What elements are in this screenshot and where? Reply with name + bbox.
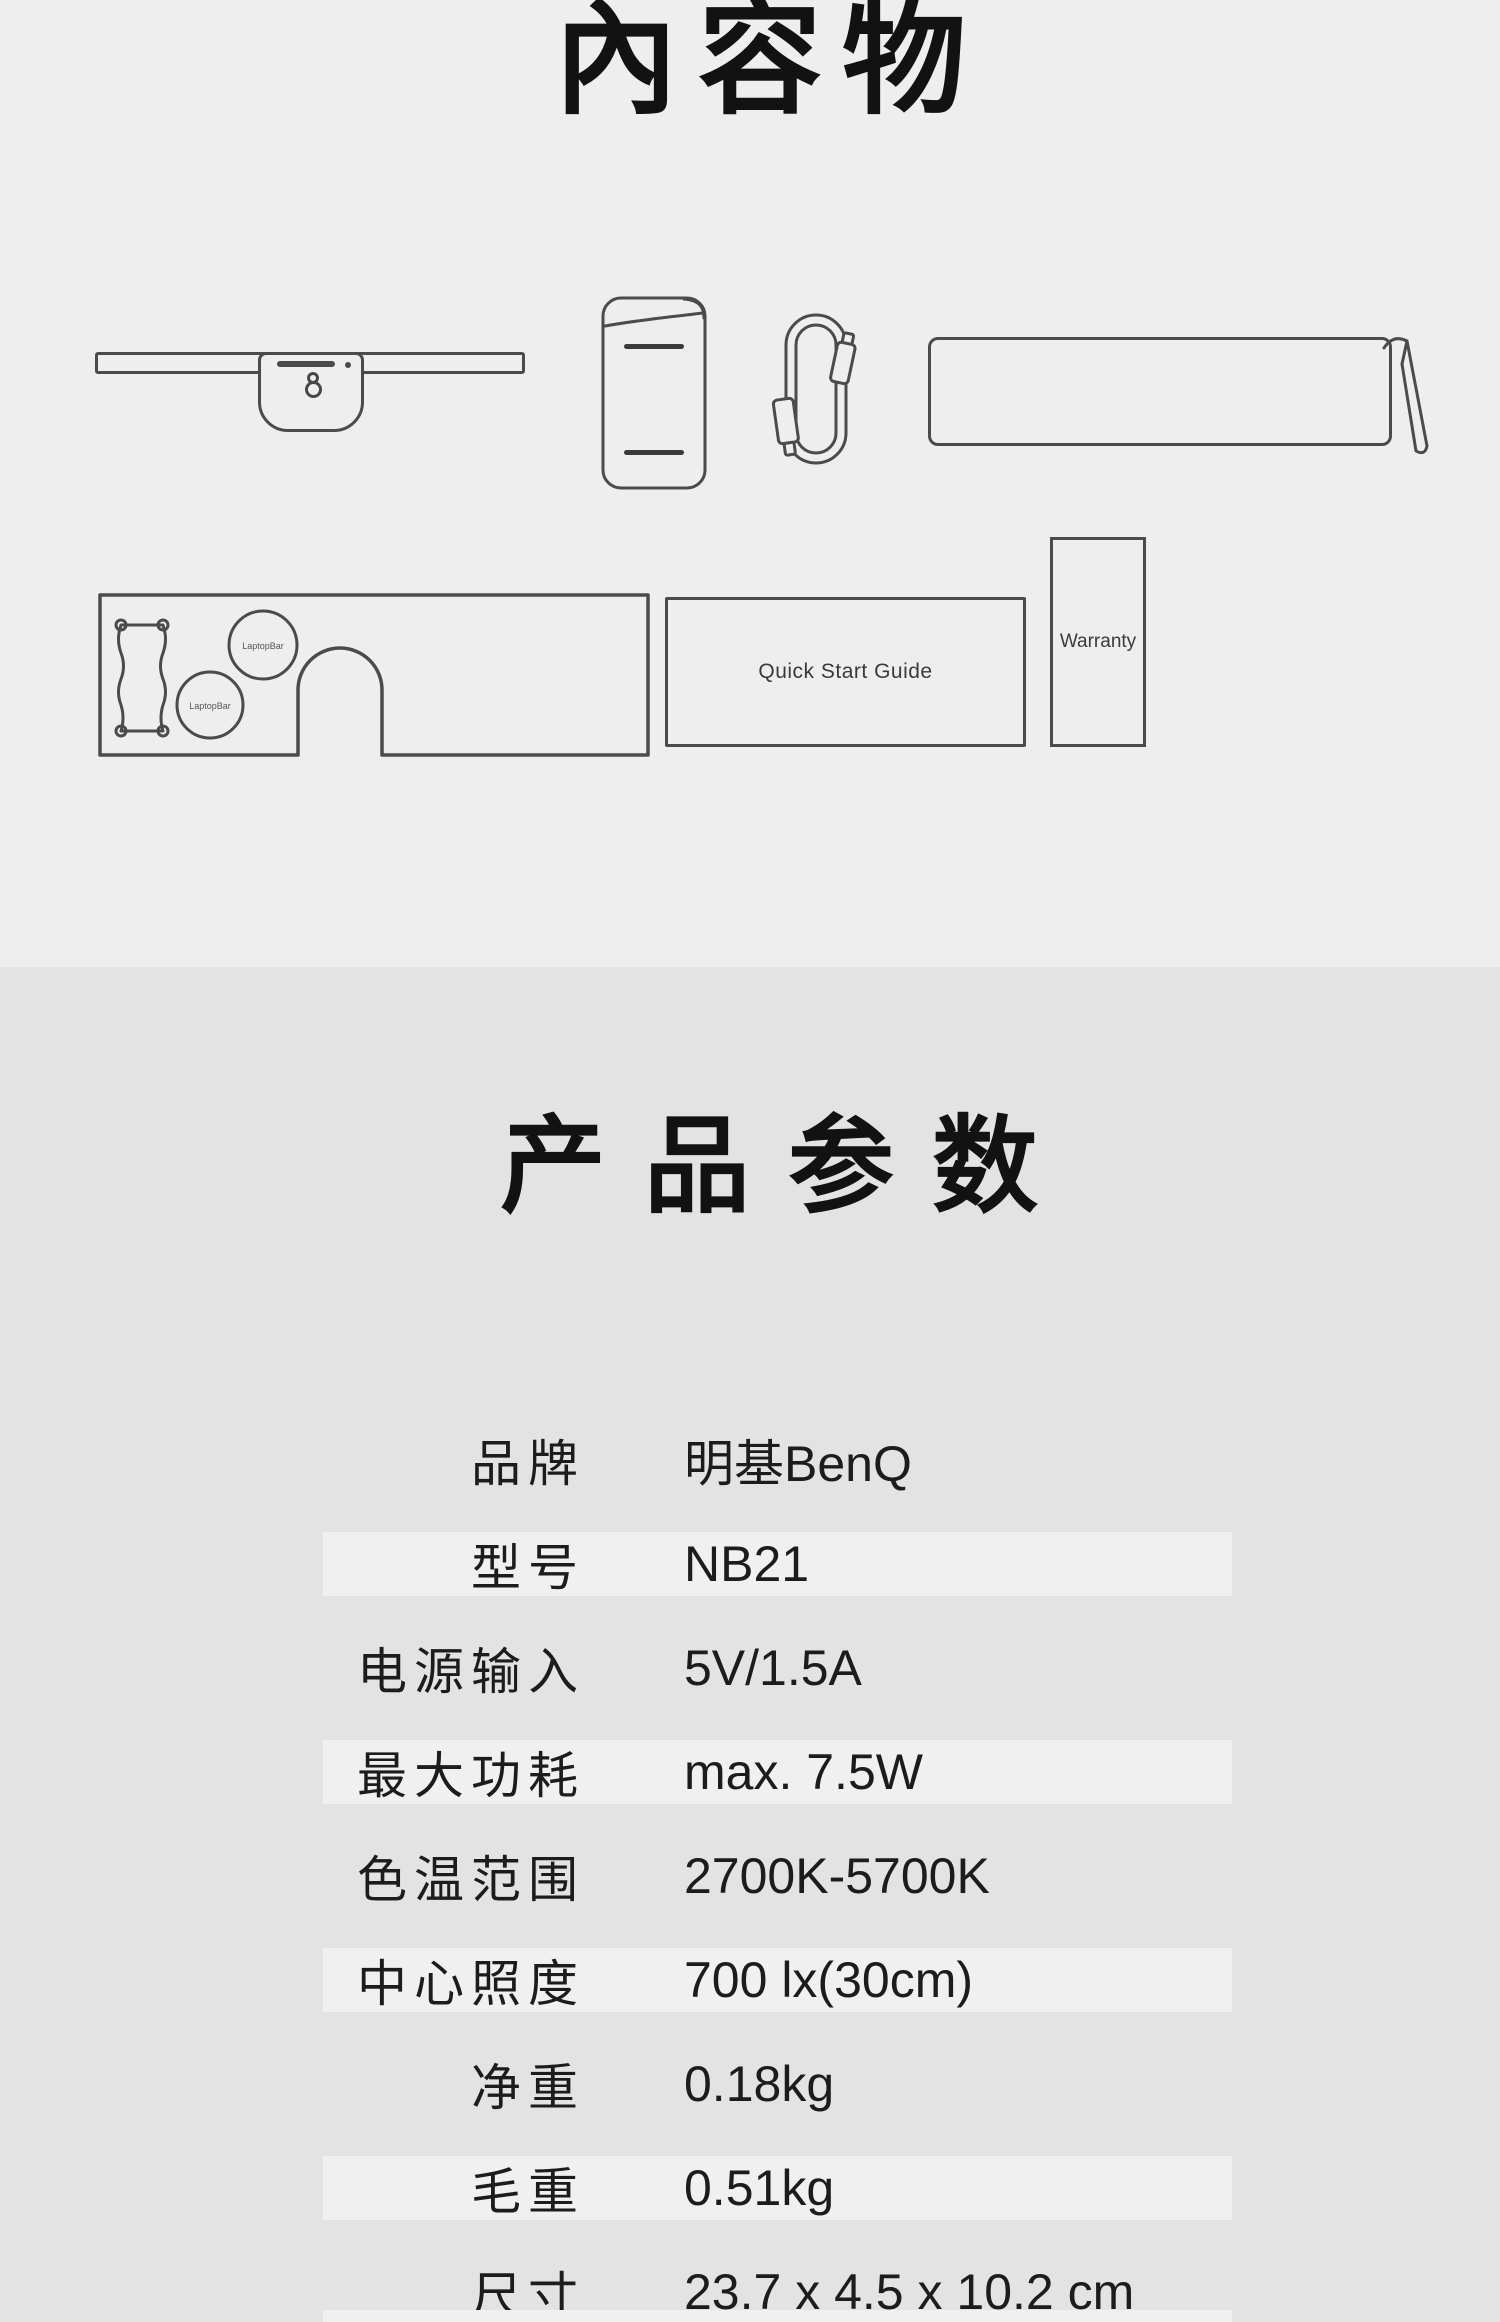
spec-label: 最大功耗 [200,1736,585,1808]
warranty-card-drawing: Warranty [1050,537,1146,747]
quick-start-guide-label: Quick Start Guide [758,660,932,684]
foam-insert-drawing: LaptopBar LaptopBar [96,591,652,759]
spec-row: 品牌明基BenQ [0,1408,1500,1512]
spec-row: 净重0.18kg [0,2032,1500,2136]
usb-cable-drawing [772,303,864,475]
spec-table: 品牌明基BenQ型号NB21电源输入5V/1.5A最大功耗max. 7.5W色温… [0,1408,1500,2322]
laptopbar-drawing-body [258,352,364,432]
laptopbar-lightstrip [277,361,335,367]
spec-value: 5V/1.5A [684,1639,1304,1697]
spec-row: 中心照度700 lx(30cm) [0,1928,1500,2032]
adapter-box-drawing [598,292,710,492]
sleeve-flap-drawing [1378,330,1430,462]
spec-label: 品牌 [200,1424,585,1496]
specs-title: 产品参数 [0,1104,1500,1231]
quick-start-guide-drawing: Quick Start Guide [665,597,1026,747]
spec-value: 700 lx(30cm) [684,1951,1304,2009]
spec-label: 毛重 [200,2152,585,2224]
spec-value: 2700K-5700K [684,1847,1304,1905]
spec-label: 中心照度 [200,1944,585,2016]
product-detail-page: 內容物 [0,0,1500,2322]
contents-title: 內容物 [0,0,1500,135]
laptopbar-sensor-dot [345,362,351,368]
spec-label: 电源输入 [200,1632,585,1704]
spec-row: 色温范围2700K-5700K [0,1824,1500,1928]
warranty-label: Warranty [1060,631,1136,653]
spec-row: 毛重0.51kg [0,2136,1500,2240]
foam-circle-label: LaptopBar [189,701,231,711]
spec-value: max. 7.5W [684,1743,1304,1801]
foam-strap-drawing [119,625,166,731]
spec-label: 型号 [200,1528,585,1600]
spec-row: 最大功耗max. 7.5W [0,1720,1500,1824]
cutoff-row-stripe [323,2310,1232,2322]
laptopbar-logo-circle-small [307,372,319,384]
foam-circle-label: LaptopBar [242,641,284,651]
spec-row: 电源输入5V/1.5A [0,1616,1500,1720]
spec-label: 色温范围 [200,1840,585,1912]
sleeve-pouch-drawing [928,337,1392,446]
spec-value: 0.51kg [684,2159,1304,2217]
package-contents-section: 內容物 [0,0,1500,967]
spec-value: 明基BenQ [684,1424,1304,1496]
spec-value: 0.18kg [684,2055,1304,2113]
spec-value: NB21 [684,1535,1304,1593]
spec-row: 型号NB21 [0,1512,1500,1616]
spec-label: 净重 [200,2048,585,2120]
